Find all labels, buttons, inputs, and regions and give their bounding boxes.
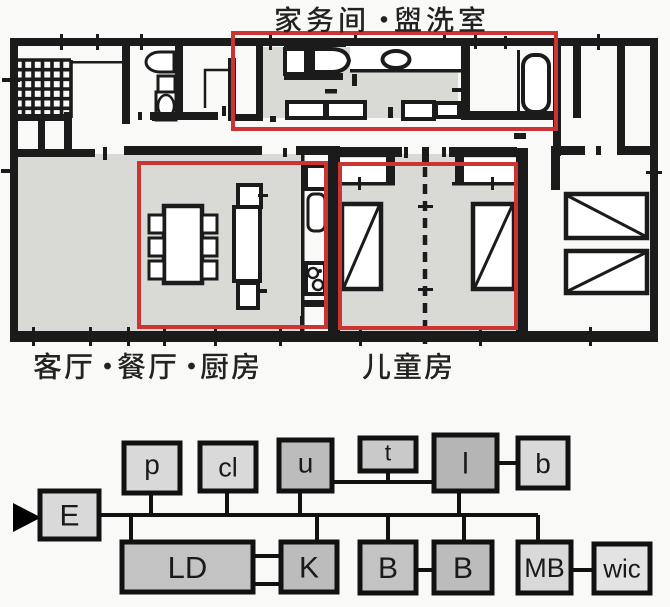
svg-text:LD: LD: [168, 550, 208, 585]
svg-text:E: E: [59, 500, 79, 533]
svg-text:p: p: [144, 449, 160, 480]
svg-text:B: B: [453, 552, 473, 585]
svg-text:cl: cl: [218, 452, 238, 482]
svg-text:K: K: [299, 552, 319, 585]
svg-text:l: l: [462, 448, 469, 481]
svg-text:b: b: [535, 448, 551, 479]
svg-text:t: t: [385, 440, 392, 466]
svg-text:wic: wic: [602, 554, 641, 584]
svg-text:MB: MB: [524, 553, 565, 583]
svg-text:B: B: [378, 552, 398, 585]
svg-text:u: u: [298, 447, 314, 478]
